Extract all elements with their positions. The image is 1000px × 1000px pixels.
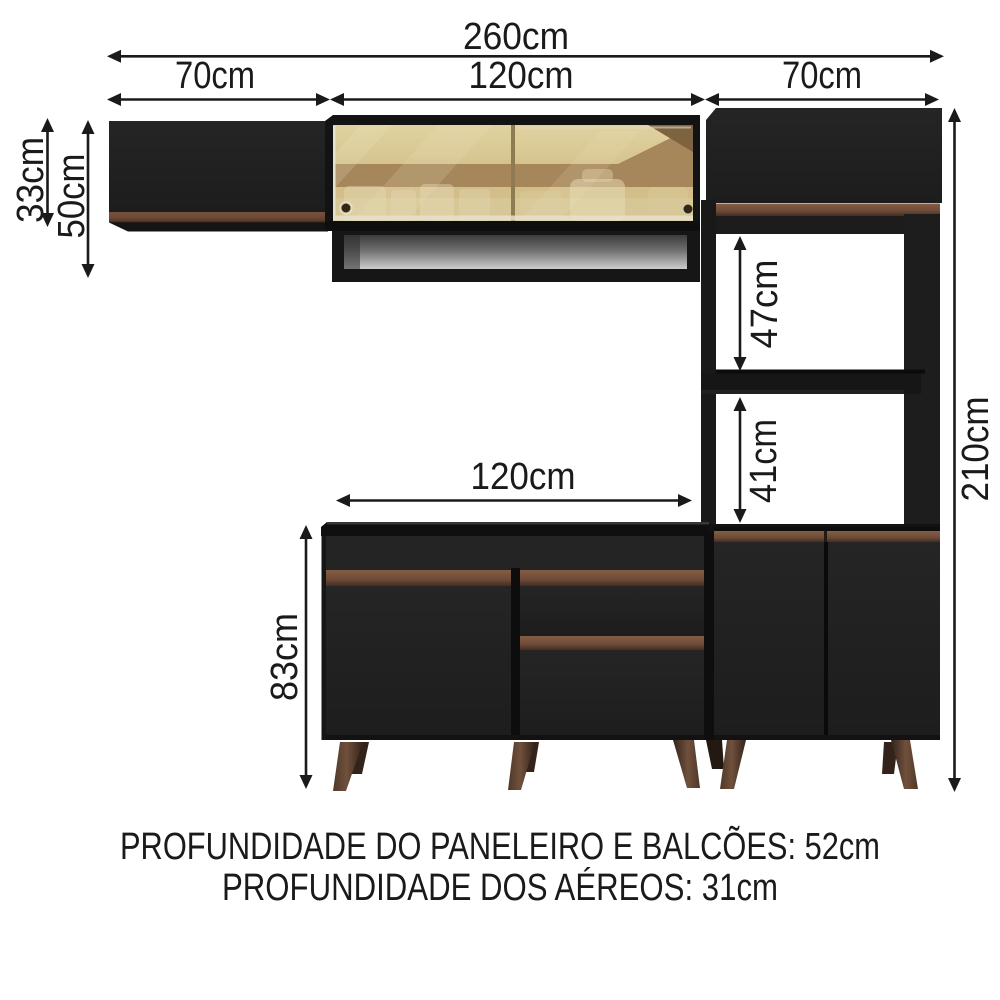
svg-text:70cm: 70cm bbox=[782, 55, 862, 97]
svg-text:260cm: 260cm bbox=[463, 16, 569, 58]
svg-text:120cm: 120cm bbox=[469, 55, 574, 97]
svg-text:47cm: 47cm bbox=[744, 260, 786, 349]
svg-text:70cm: 70cm bbox=[175, 55, 255, 97]
svg-text:120cm: 120cm bbox=[471, 456, 576, 498]
svg-text:83cm: 83cm bbox=[264, 613, 306, 701]
svg-text:41cm: 41cm bbox=[743, 419, 785, 503]
svg-text:PROFUNDIDADE DO PANELEIRO E BA: PROFUNDIDADE DO PANELEIRO E BALCÕES: 52c… bbox=[120, 824, 880, 868]
svg-text:210cm: 210cm bbox=[955, 397, 997, 502]
svg-text:PROFUNDIDADE DOS AÉREOS: 31cm: PROFUNDIDADE DOS AÉREOS: 31cm bbox=[222, 866, 778, 909]
svg-text:33cm: 33cm bbox=[10, 137, 52, 223]
svg-text:50cm: 50cm bbox=[51, 154, 93, 239]
